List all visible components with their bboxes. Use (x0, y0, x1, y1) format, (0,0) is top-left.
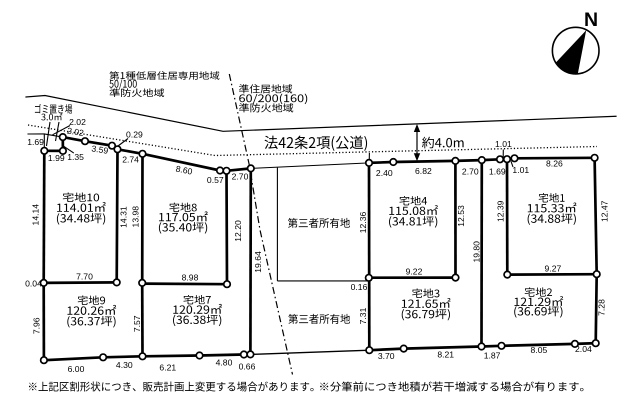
svg-text:14.31: 14.31 (119, 206, 129, 228)
svg-text:19.80: 19.80 (472, 241, 482, 263)
svg-text:N: N (584, 9, 598, 31)
svg-text:2.40: 2.40 (376, 168, 393, 178)
svg-text:2.02: 2.02 (66, 125, 84, 138)
svg-text:8.26: 8.26 (546, 159, 563, 169)
svg-text:8.05: 8.05 (531, 345, 548, 355)
svg-text:8.60: 8.60 (175, 163, 194, 176)
svg-text:7.96: 7.96 (31, 317, 41, 334)
svg-text:0.04: 0.04 (25, 278, 42, 288)
svg-text:12.47: 12.47 (599, 200, 609, 222)
svg-text:1.69: 1.69 (489, 166, 506, 176)
svg-text:3.59: 3.59 (91, 143, 109, 156)
svg-text:12.39: 12.39 (496, 200, 506, 222)
svg-text:12.53: 12.53 (456, 205, 466, 227)
svg-text:1.99: 1.99 (48, 153, 65, 163)
svg-text:2.04: 2.04 (575, 344, 592, 354)
svg-text:19.64: 19.64 (253, 251, 263, 273)
svg-text:0.29: 0.29 (126, 130, 143, 140)
svg-text:7.70: 7.70 (76, 271, 93, 281)
svg-text:8.98: 8.98 (182, 273, 199, 283)
svg-text:2.70: 2.70 (232, 172, 249, 182)
svg-text:8.21: 8.21 (437, 350, 454, 360)
svg-text:1.69: 1.69 (27, 137, 44, 147)
svg-text:7.31: 7.31 (358, 307, 368, 324)
svg-text:2.70: 2.70 (462, 166, 479, 176)
svg-text:1.87: 1.87 (484, 350, 501, 360)
svg-text:0.66: 0.66 (239, 361, 256, 371)
svg-text:9.22: 9.22 (406, 267, 423, 277)
svg-text:12.36: 12.36 (358, 212, 368, 234)
svg-text:7.28: 7.28 (597, 299, 607, 316)
svg-text:1.01: 1.01 (495, 139, 512, 149)
svg-text:7.57: 7.57 (132, 315, 142, 332)
svg-text:0.57: 0.57 (207, 175, 224, 185)
svg-text:6.00: 6.00 (68, 364, 85, 374)
svg-text:0.16: 0.16 (351, 282, 368, 292)
svg-text:13.98: 13.98 (131, 206, 141, 228)
svg-text:2.74: 2.74 (122, 155, 139, 165)
svg-text:1.35: 1.35 (67, 152, 84, 162)
svg-text:1.01: 1.01 (512, 165, 529, 175)
svg-text:9.27: 9.27 (545, 263, 562, 273)
svg-text:4.30: 4.30 (116, 360, 133, 370)
svg-text:6.21: 6.21 (159, 362, 176, 372)
svg-text:6.82: 6.82 (415, 166, 432, 176)
svg-text:14.14: 14.14 (31, 204, 41, 226)
svg-text:3.70: 3.70 (378, 351, 395, 361)
svg-text:12.20: 12.20 (233, 220, 243, 242)
svg-text:4.80: 4.80 (216, 358, 233, 368)
